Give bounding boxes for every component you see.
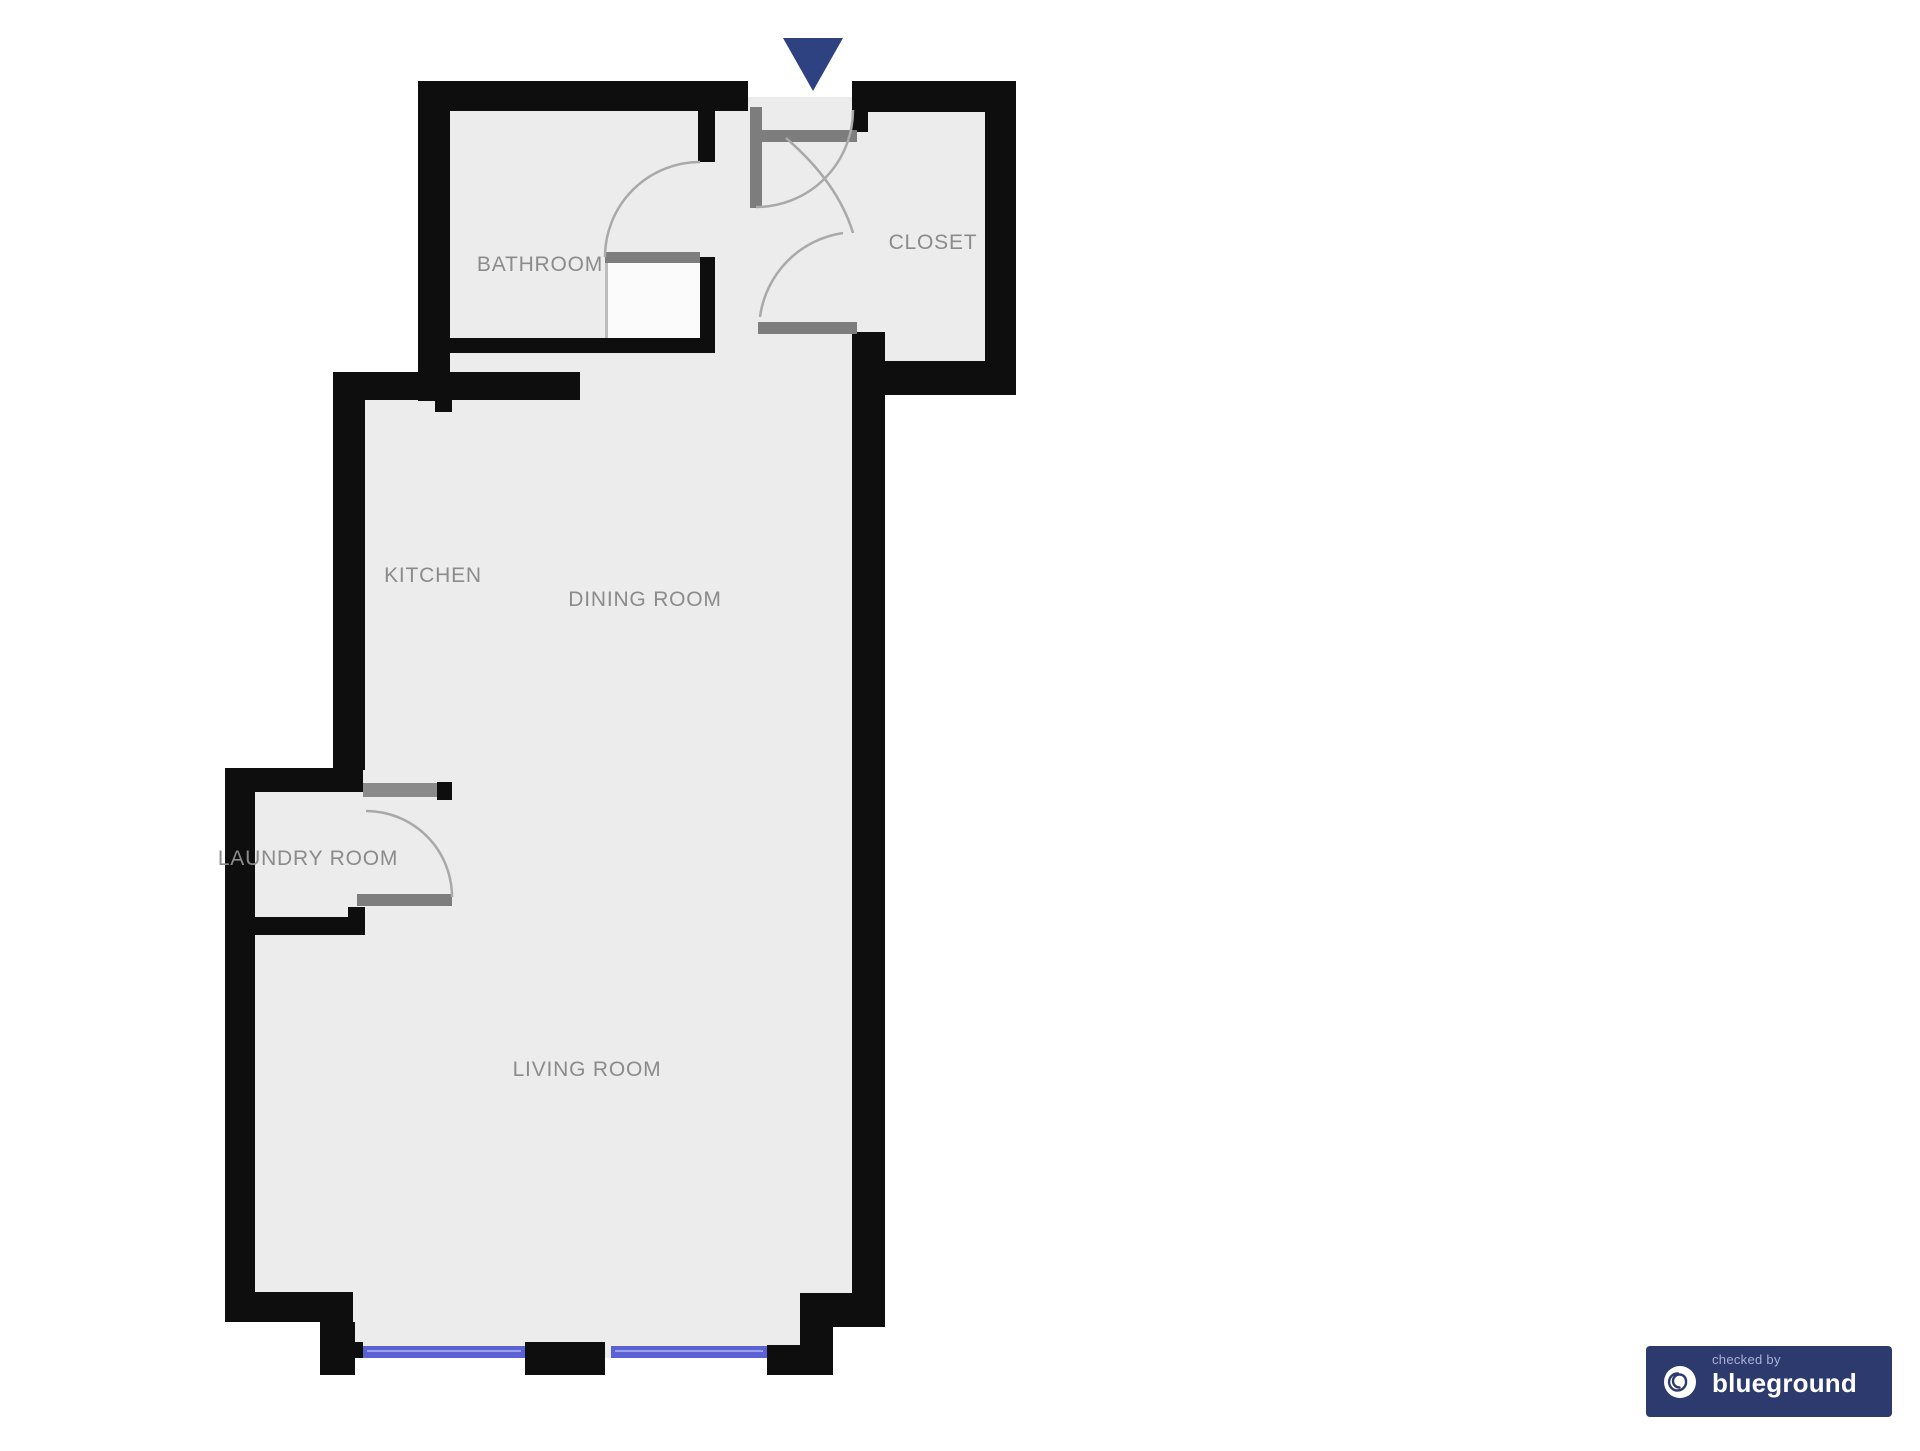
room-label-closet: CLOSET xyxy=(889,231,978,254)
wall-window-left-cap xyxy=(355,1342,363,1358)
blueground-badge: checked by blueground xyxy=(1646,1346,1892,1417)
blueground-logo-icon xyxy=(1662,1364,1698,1400)
wall-kitchen-top xyxy=(333,372,580,400)
wall-top-bathroom xyxy=(418,81,748,111)
wall-closet-bottom xyxy=(883,361,1016,395)
wall-laundry-stub xyxy=(437,782,452,800)
entrance-arrow-icon xyxy=(783,38,843,91)
wall-kitchen-bump xyxy=(435,398,452,412)
room-label-living-room: LIVING ROOM xyxy=(513,1058,662,1081)
floorplan-page: BATHROOM CLOSET KITCHEN DINING ROOM LAUN… xyxy=(0,0,1920,1451)
bathroom-door-leaf xyxy=(605,252,700,263)
room-label-laundry-room: LAUNDRY ROOM xyxy=(218,847,398,870)
wall-closet-left-stub xyxy=(852,81,868,132)
wall-bottom-right-step xyxy=(800,1327,833,1375)
room-label-kitchen: KITCHEN xyxy=(384,564,482,587)
closet-door-leaf-top xyxy=(758,130,857,142)
badge-text: checked by blueground xyxy=(1712,1353,1857,1396)
wall-laundry-bottom-step xyxy=(348,907,365,935)
shower-stall xyxy=(605,257,700,338)
wall-right xyxy=(852,332,885,1327)
laundry-door-leaf xyxy=(357,894,452,906)
window-glass-line xyxy=(367,1350,521,1352)
floorplan-drawing: BATHROOM CLOSET KITCHEN DINING ROOM LAUN… xyxy=(0,0,1920,1451)
room-label-dining-room: DINING ROOM xyxy=(568,588,721,611)
wall-bathroom-bottom xyxy=(445,338,713,353)
wall-bottom-right-block xyxy=(800,1293,885,1327)
shower-edge xyxy=(605,257,608,338)
room-label-bathroom: BATHROOM xyxy=(477,253,603,276)
wall-closet-right xyxy=(985,81,1016,395)
wall-bottom-left-step xyxy=(320,1322,355,1375)
window-glass-line xyxy=(615,1350,763,1352)
wall-kitchen-left xyxy=(333,372,365,770)
entry-door-leaf xyxy=(750,107,762,208)
wall-entry-stub xyxy=(698,110,715,162)
wall-bottom-left xyxy=(225,1292,353,1322)
shower-floor xyxy=(605,257,700,338)
closet-door-leaf-bottom xyxy=(758,322,857,334)
badge-brand-text: blueground xyxy=(1712,1370,1857,1396)
wall-window-pier xyxy=(525,1342,605,1375)
laundry-opening-sill xyxy=(363,783,437,797)
badge-checked-by-text: checked by xyxy=(1712,1353,1857,1366)
